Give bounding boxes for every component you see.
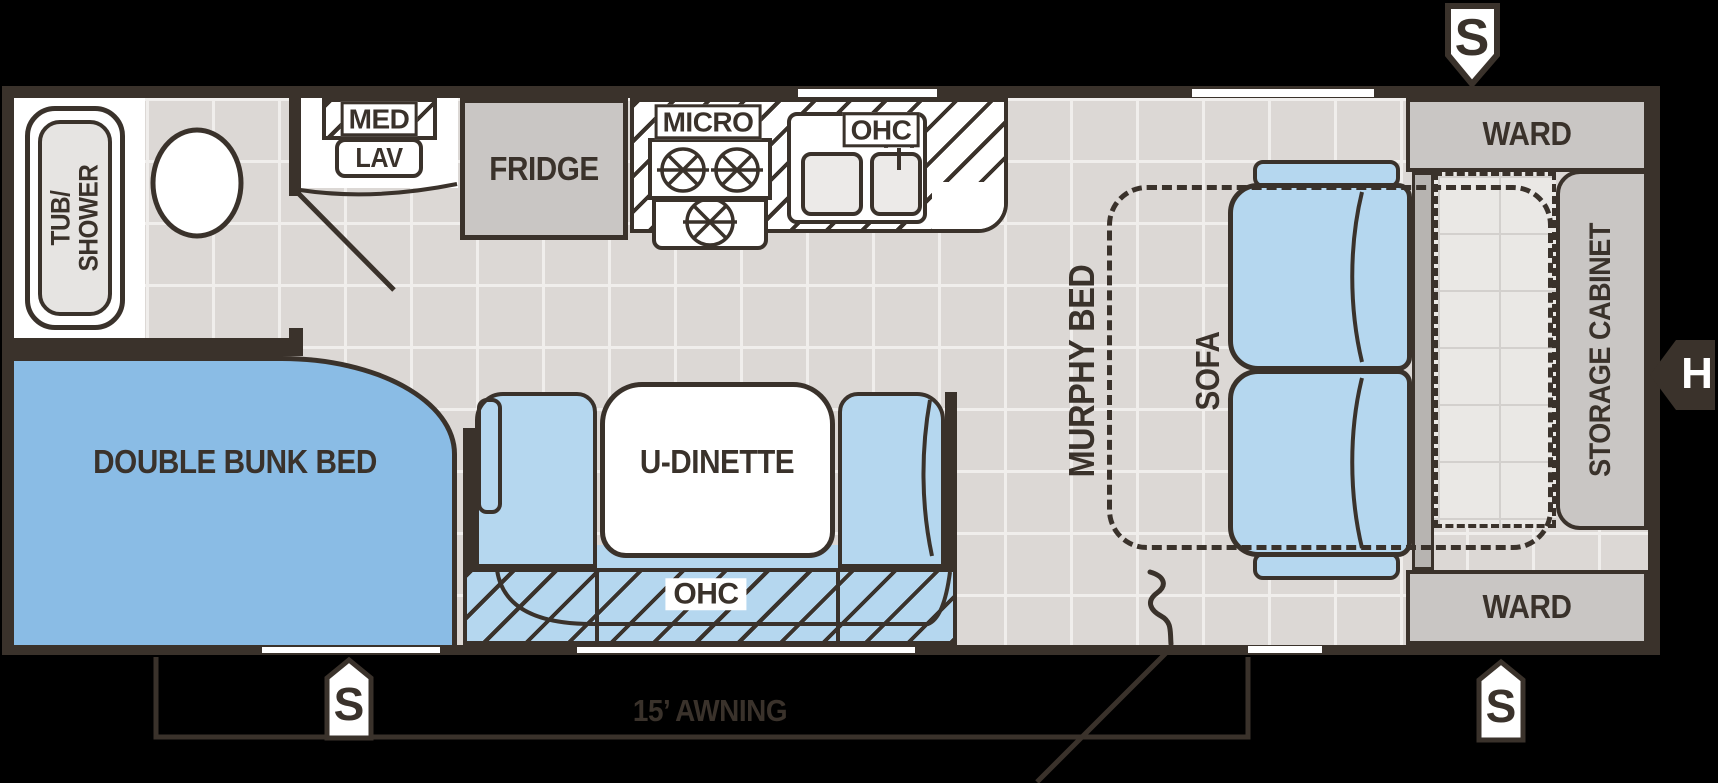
marker-s-bottom-right-label: S	[1486, 679, 1517, 733]
lav-label: LAV	[355, 142, 402, 174]
dinette-bench-right	[838, 392, 945, 568]
double-bunk-bed-label: DOUBLE BUNK BED	[93, 443, 377, 481]
marker-s-bottom-left-label: S	[334, 677, 365, 731]
dinette-ohc-label: OHC	[665, 578, 746, 610]
rv-floorplan: TUB/ SHOWER MED LAV FRIDGE MICRO OHC U-D…	[0, 0, 1718, 783]
compartment-bottom-center	[577, 647, 915, 653]
micro-label: MICRO	[655, 104, 762, 139]
awning-label: 15’ AWNING	[633, 693, 787, 729]
counter-corner	[932, 182, 1008, 233]
entry-door-opening	[1248, 646, 1322, 653]
entry-door-swing	[1037, 649, 1170, 782]
window-top-sofa	[1192, 89, 1374, 97]
sofa-label: SOFA	[1189, 331, 1227, 410]
u-dinette-label: U-DINETTE	[640, 443, 794, 481]
tub-shower-label: TUB/ SHOWER	[47, 165, 104, 272]
ward-bottom-label: WARD	[1483, 588, 1572, 626]
storage-cabinet-label: STORAGE CABINET	[1584, 223, 1618, 477]
marker-s-top-label: S	[1455, 8, 1490, 68]
kitchen-ohc-label: OHC	[843, 112, 920, 147]
sink-bowl-right	[870, 152, 922, 216]
med-label: MED	[341, 101, 418, 136]
wall-left	[2, 86, 14, 655]
fridge-label: FRIDGE	[489, 150, 599, 188]
dinette-bench-left	[475, 392, 597, 568]
tub-label-line2: SHOWER	[74, 165, 104, 272]
tub-label-line1: TUB/	[46, 191, 76, 246]
sink-bowl-left	[801, 152, 863, 216]
stove-top	[648, 138, 772, 200]
bunk-wall	[2, 338, 303, 356]
marker-h-right-label: H	[1681, 349, 1713, 399]
murphy-bed-label: MURPHY BED	[1061, 265, 1103, 478]
window-top-kitchen	[798, 89, 937, 97]
bunk-wall-stub	[289, 328, 303, 340]
wall-right	[1648, 86, 1660, 655]
ward-top-label: WARD	[1483, 115, 1572, 153]
bathroom-wall	[289, 98, 301, 196]
stove-lower	[652, 198, 768, 250]
double-bunk-bed	[14, 356, 457, 645]
murphy-bed-outline	[1107, 185, 1553, 550]
compartment-bottom-left	[262, 647, 440, 653]
